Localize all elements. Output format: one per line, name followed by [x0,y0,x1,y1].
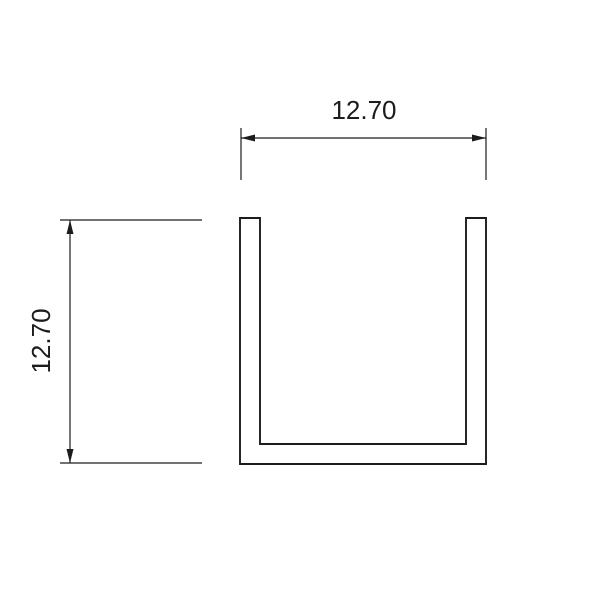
width-dimension-label: 12.70 [331,95,396,125]
width-arrowhead-right [472,135,486,142]
height-dimension: 12.70 [26,220,202,463]
drawing-canvas: 12.70 12.70 [0,0,600,600]
width-dimension: 12.70 [241,95,486,180]
u-channel-outline [240,218,486,464]
height-arrowhead-bottom [67,449,74,463]
width-arrowhead-left [241,135,255,142]
height-arrowhead-top [67,220,74,234]
u-channel-profile [240,218,486,464]
technical-drawing: 12.70 12.70 [0,0,600,600]
height-dimension-label: 12.70 [26,308,56,373]
